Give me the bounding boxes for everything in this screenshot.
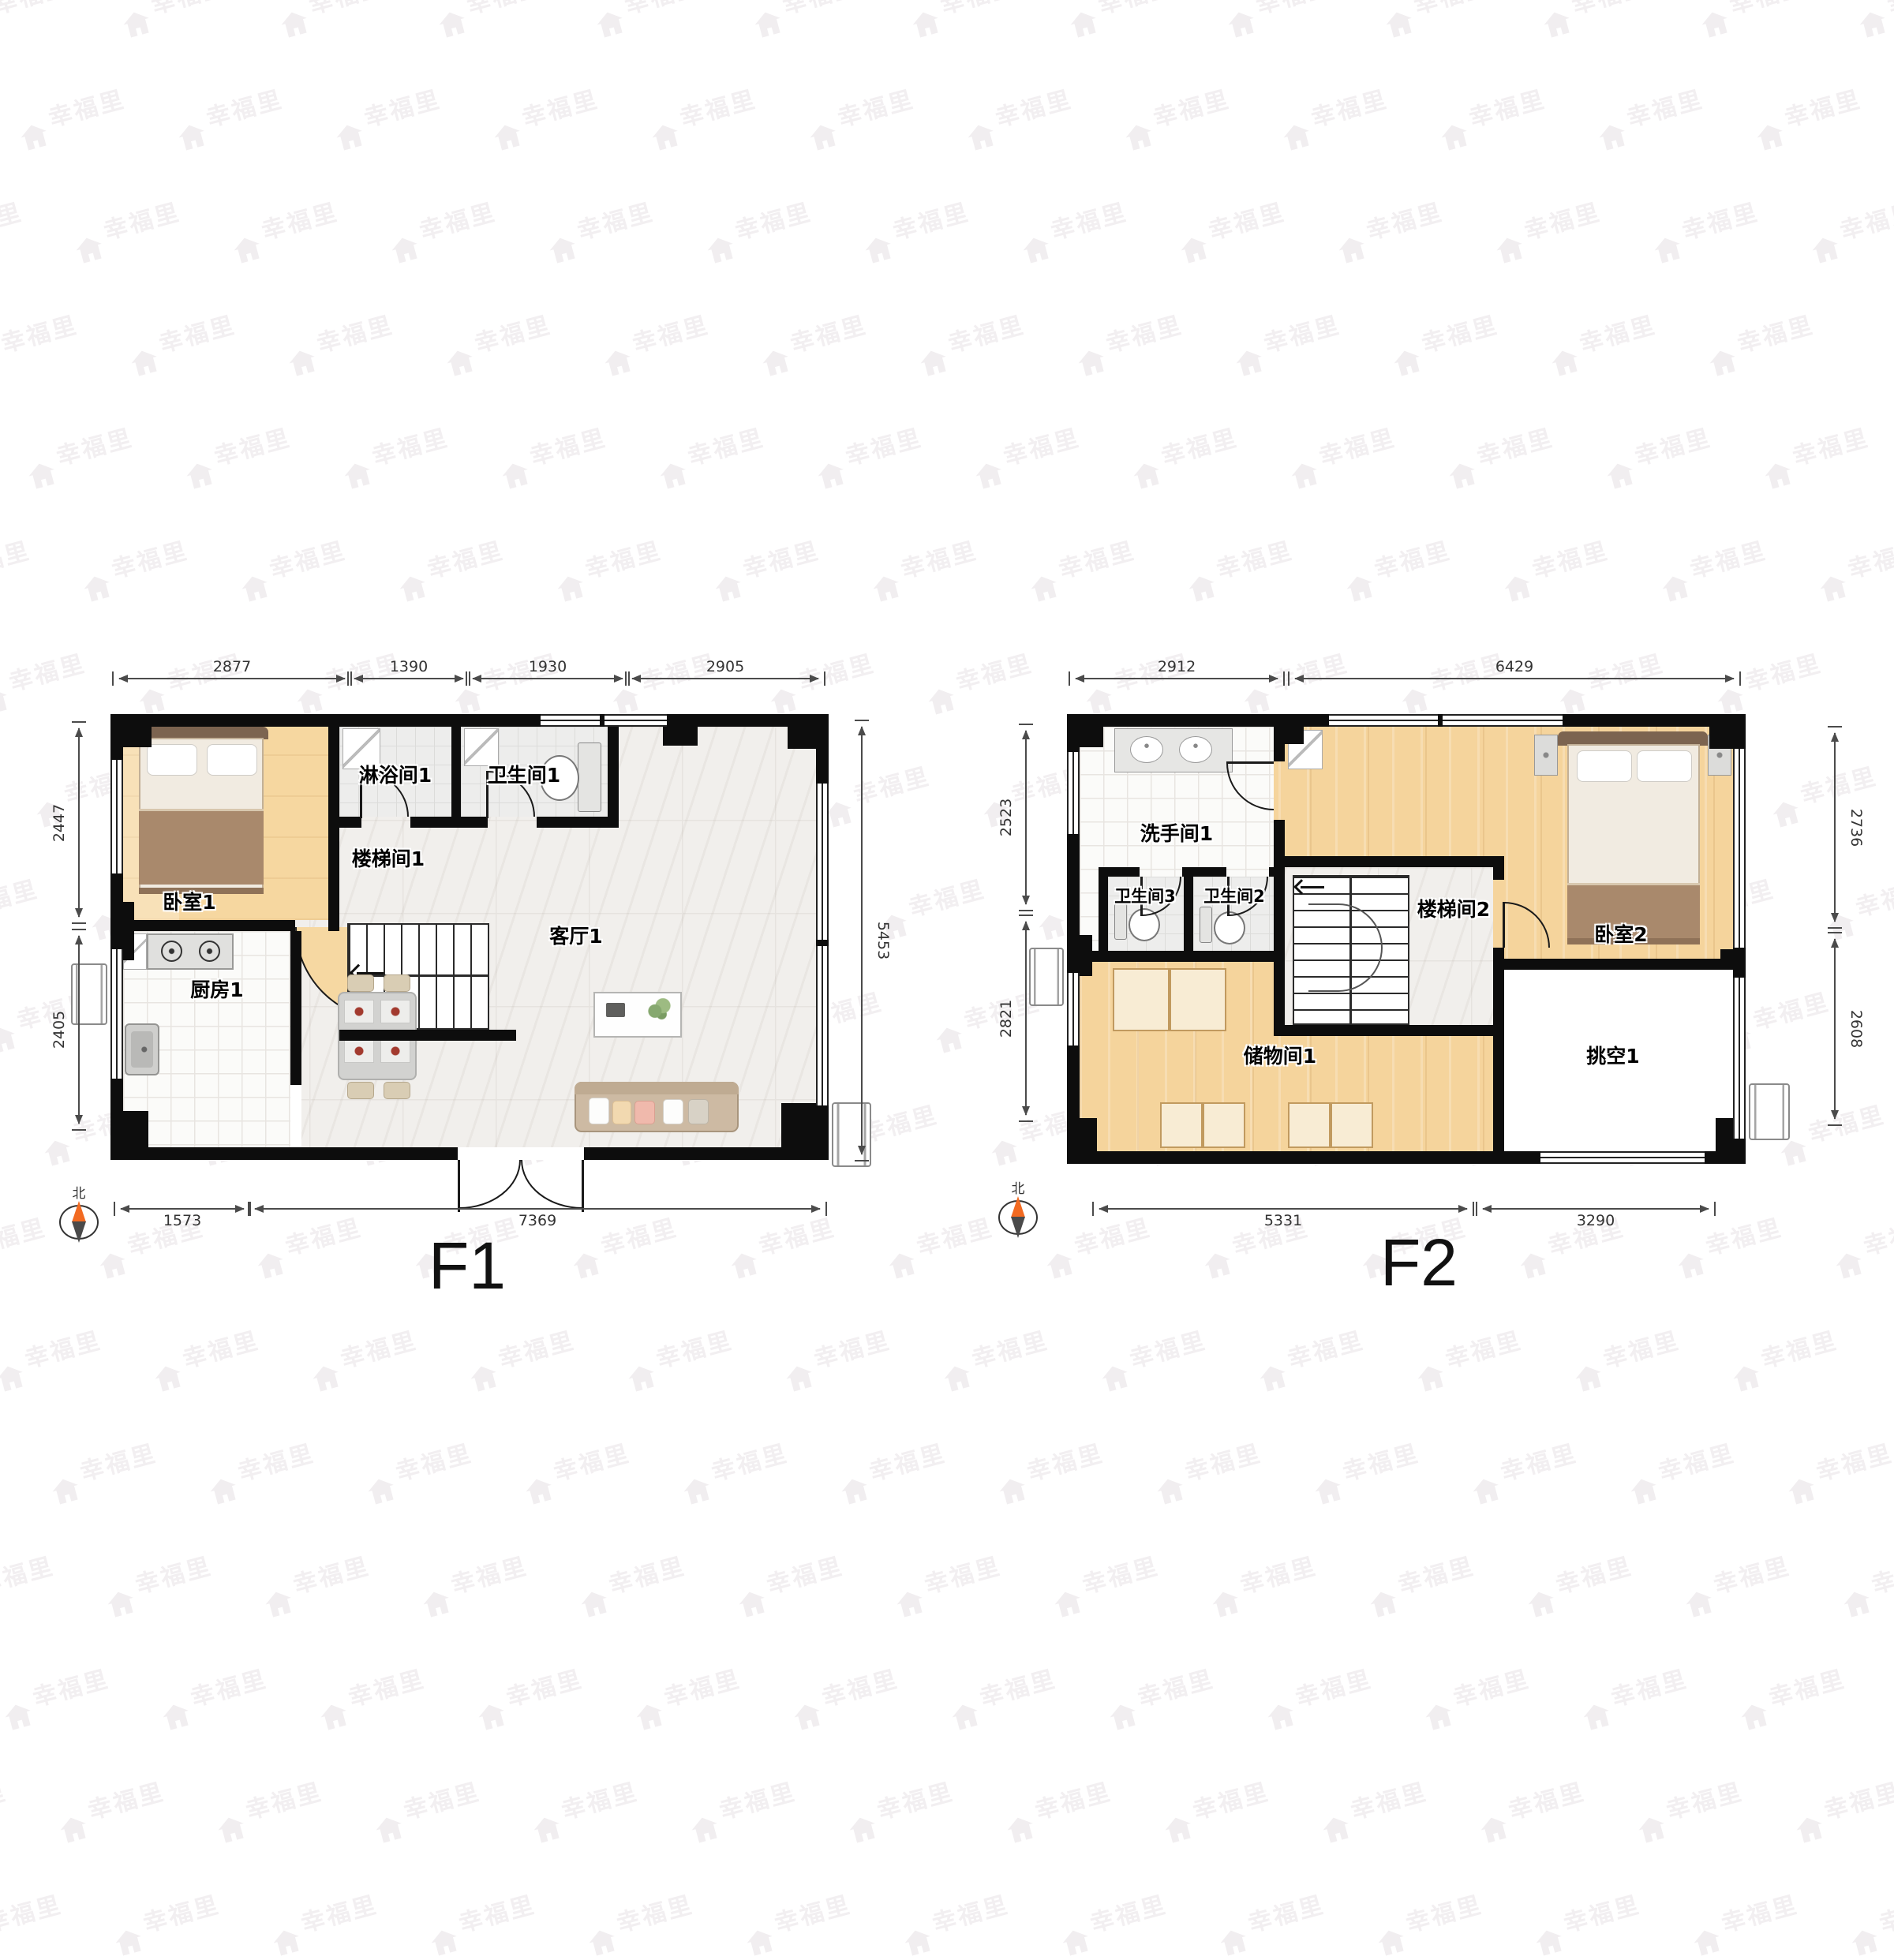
- watermark-house-icon: [271, 1927, 304, 1960]
- wall: [290, 931, 301, 1085]
- watermark-house-icon: [255, 1250, 288, 1283]
- watermark-text: 幸福里: [494, 1321, 578, 1375]
- wall: [328, 727, 339, 931]
- place-setting: [344, 1039, 374, 1063]
- dimension-value: 2405: [51, 1011, 68, 1049]
- dimension-segment: 2905: [631, 671, 819, 686]
- stair-arrow-line: [1301, 886, 1324, 888]
- watermark-house-icon: [81, 573, 114, 606]
- watermark-text: 幸福里: [968, 1321, 1052, 1375]
- watermark-house-icon: [492, 122, 525, 155]
- storage-cabinet: [1288, 1102, 1331, 1148]
- watermark-text: 幸福里: [305, 0, 389, 21]
- dimension-value: 6429: [1495, 658, 1533, 675]
- watermark-house-icon: [1131, 460, 1164, 493]
- watermark-house-icon: [926, 686, 959, 719]
- watermark-text: 幸福里: [1717, 1885, 1802, 1939]
- ac-unit: [1749, 1083, 1790, 1140]
- watermark-text: 幸福里: [1212, 531, 1297, 585]
- column: [1720, 949, 1746, 970]
- column: [1709, 714, 1746, 749]
- watermark-text: 幸福里: [1843, 531, 1894, 585]
- watermark-house-icon: [863, 234, 896, 267]
- watermark-text: 幸福里: [1654, 1434, 1739, 1487]
- watermark-text: 幸福里: [912, 1208, 997, 1262]
- dimension-value: 5453: [874, 922, 892, 959]
- watermark-text: 幸福里: [28, 1659, 113, 1713]
- place-setting: [380, 1000, 410, 1023]
- watermark-text: 幸福里: [265, 531, 350, 585]
- watermark-text: 幸福里: [1859, 1208, 1894, 1262]
- ac-unit: [1029, 948, 1064, 1006]
- watermark-text: 幸福里: [1575, 305, 1660, 359]
- watermark-house-icon: [1099, 1363, 1132, 1396]
- watermark-text: 幸福里: [896, 531, 981, 585]
- toilet-bowl: [1214, 911, 1245, 944]
- window-mullion: [600, 714, 605, 727]
- watermark-text: 幸福里: [139, 1885, 223, 1939]
- window: [1067, 752, 1080, 834]
- watermark-house-icon: [1660, 573, 1693, 606]
- watermark-text: 幸福里: [1607, 1659, 1691, 1713]
- watermark-house-icon: [1076, 347, 1109, 380]
- wall: [1493, 970, 1504, 1151]
- watermark-house-icon: [1312, 1476, 1346, 1509]
- sofa-pillow: [663, 1099, 683, 1124]
- watermark-house-icon: [839, 1476, 872, 1509]
- watermark-text: 幸福里: [1236, 1547, 1320, 1600]
- watermark-text: 幸福里: [423, 531, 507, 585]
- watermark-text: 幸福里: [1725, 0, 1810, 21]
- column: [1067, 1118, 1097, 1164]
- watermark-house-icon: [1107, 1701, 1140, 1734]
- kitchen-opening: [290, 1085, 301, 1147]
- watermark-text: 幸福里: [707, 1434, 792, 1487]
- room-label-toilet2: 卫生间2: [1203, 884, 1265, 907]
- watermark-house-icon: [815, 460, 848, 493]
- watermark-text: 幸福里: [455, 1885, 539, 1939]
- watermark-house-icon: [176, 122, 209, 155]
- watermark-text: 幸福里: [234, 1434, 318, 1487]
- watermark-text: 幸福里: [1078, 1547, 1162, 1600]
- watermark-text: 幸福里: [1567, 0, 1652, 21]
- watermark-text: 幸福里: [1086, 1885, 1170, 1939]
- column: [110, 714, 152, 747]
- watermark-house-icon: [705, 234, 738, 267]
- wall: [608, 727, 619, 828]
- dimension-value: 7369: [518, 1212, 556, 1229]
- watermark-text: 幸福里: [975, 1659, 1060, 1713]
- watermark-text: 幸福里: [683, 418, 768, 472]
- toilet-tank: [578, 742, 601, 812]
- room-label-bedroom2: 卧室2: [1594, 919, 1647, 948]
- watermark-house-icon: [476, 1701, 509, 1734]
- watermark-text: 幸福里: [1133, 1659, 1218, 1713]
- watermark-house-icon: [1005, 1814, 1038, 1847]
- room-label-living1: 客厅1: [549, 921, 602, 949]
- watermark-house-icon: [208, 1476, 241, 1509]
- watermark-text: 幸福里: [1094, 0, 1178, 21]
- watermark-house-icon: [429, 1927, 462, 1960]
- watermark-house-icon: [1525, 1588, 1559, 1621]
- watermark-text: 幸福里: [415, 193, 500, 246]
- wall: [110, 714, 829, 727]
- watermark-house-icon: [870, 573, 904, 606]
- watermark-text: 幸福里: [612, 1885, 697, 1939]
- watermark-house-icon: [97, 1250, 130, 1283]
- watermark-text: 幸福里: [1338, 1434, 1423, 1487]
- watermark-text: 幸福里: [1291, 1659, 1376, 1713]
- watermark-house-icon: [42, 1137, 75, 1170]
- watermark-house-icon: [602, 347, 635, 380]
- watermark-text: 幸福里: [1804, 1095, 1888, 1149]
- watermark-house-icon: [1060, 1927, 1093, 1960]
- compass-north-label: 北: [994, 1177, 1042, 1197]
- watermark-text: 幸福里: [1552, 1547, 1636, 1600]
- watermark-house-icon: [1257, 1363, 1290, 1396]
- watermark-text: 幸福里: [0, 1208, 50, 1262]
- watermark-house-icon: [121, 9, 154, 42]
- watermark-house-icon: [1581, 1701, 1614, 1734]
- pillow: [1637, 750, 1692, 782]
- dimension-segment: 1573: [120, 1202, 245, 1216]
- watermark-text: 幸福里: [1701, 1208, 1786, 1262]
- watermark-text: 幸福里: [0, 193, 26, 246]
- watermark-house-icon: [1549, 347, 1582, 380]
- watermark-house-icon: [1178, 234, 1211, 267]
- dimension-value: 3290: [1577, 1212, 1615, 1229]
- watermark-text: 幸福里: [1054, 531, 1139, 585]
- watermark-text: 幸福里: [1449, 1659, 1533, 1713]
- wall: [1493, 856, 1504, 880]
- watermark-house-icon: [973, 460, 1006, 493]
- watermark-house-icon: [1415, 1363, 1448, 1396]
- wall: [410, 817, 488, 828]
- watermark-house-icon: [1186, 573, 1219, 606]
- watermark-house-icon: [1691, 1927, 1724, 1960]
- watermark-house-icon: [468, 1363, 501, 1396]
- watermark-house-icon: [58, 1814, 91, 1847]
- watermark-text: 幸福里: [0, 0, 73, 21]
- compass-f2: 北: [994, 1177, 1042, 1235]
- wall: [1274, 951, 1285, 1036]
- wall: [1182, 867, 1226, 877]
- watermark-house-icon: [1683, 1588, 1716, 1621]
- watermark-text: 幸福里: [889, 193, 973, 246]
- watermark-text: 幸福里: [1149, 80, 1233, 133]
- watermark-text: 幸福里: [1362, 193, 1447, 246]
- watermark-text: 幸福里: [833, 80, 918, 133]
- watermark-house-icon: [18, 122, 51, 155]
- watermark-text: 幸福里: [549, 1434, 634, 1487]
- watermark-text: 幸福里: [1599, 1321, 1683, 1375]
- column: [110, 1111, 148, 1160]
- dimension-value: 2877: [213, 658, 251, 675]
- watermark-house-icon: [2, 1701, 36, 1734]
- watermark-text: 幸福里: [76, 1434, 160, 1487]
- wall: [1274, 856, 1504, 867]
- storage-cabinet: [1160, 1102, 1203, 1148]
- chair: [384, 1082, 410, 1099]
- watermark-text: 幸福里: [1686, 531, 1770, 585]
- watermark-house-icon: [215, 1814, 249, 1847]
- watermark-house-icon: [1028, 573, 1061, 606]
- watermark-house-icon: [1123, 122, 1156, 155]
- watermark-house-icon: [578, 1588, 612, 1621]
- sofa-back: [575, 1082, 739, 1094]
- watermark-house-icon: [807, 122, 840, 155]
- watermark-text: 幸福里: [928, 1885, 1013, 1939]
- watermark-house-icon: [1857, 9, 1890, 42]
- watermark-house-icon: [1447, 460, 1480, 493]
- watermark-text: 幸福里: [620, 0, 705, 21]
- watermark-text: 幸福里: [297, 1885, 381, 1939]
- dimension-value: 2447: [51, 803, 68, 841]
- sink-basin: [131, 1031, 153, 1068]
- watermark-house-icon: [1155, 1476, 1188, 1509]
- chair: [347, 1082, 374, 1099]
- watermark-house-icon: [784, 1363, 817, 1396]
- dimension-segment: 2447: [72, 728, 86, 918]
- watermark-house-icon: [626, 1363, 659, 1396]
- room-label-void1: 挑空1: [1586, 1041, 1639, 1069]
- watermark-text: 幸福里: [1315, 418, 1399, 472]
- watermark-text: 幸福里: [1125, 1321, 1210, 1375]
- watermark-text: 幸福里: [0, 1772, 10, 1826]
- watermark-text: 幸福里: [155, 305, 239, 359]
- watermark-text: 幸福里: [289, 1547, 373, 1600]
- watermark-text: 幸福里: [573, 193, 657, 246]
- watermark-house-icon: [555, 573, 588, 606]
- watermark-house-icon: [649, 122, 683, 155]
- watermark-house-icon: [1233, 347, 1267, 380]
- dimension-segment: 2523: [1019, 730, 1033, 905]
- watermark-house-icon: [1762, 460, 1795, 493]
- watermark-house-icon: [421, 1588, 454, 1621]
- watermark-text: 幸福里: [281, 1208, 365, 1262]
- watermark-house-icon: [1849, 1927, 1882, 1960]
- watermark-house-icon: [444, 347, 477, 380]
- watermark-text: 幸福里: [1417, 305, 1502, 359]
- watermark-text: 幸福里: [731, 193, 815, 246]
- watermark-house-icon: [1604, 460, 1638, 493]
- watermark-house-icon: [1202, 1250, 1235, 1283]
- watermark-house-icon: [1052, 1588, 1085, 1621]
- dimension-segment: 2608: [1828, 938, 1842, 1120]
- wall: [110, 920, 295, 931]
- watermark-text: 幸福里: [147, 0, 231, 21]
- dimension-value: 2736: [1847, 808, 1865, 846]
- watermark-text: 幸福里: [1204, 193, 1289, 246]
- watermark-text: 幸福里: [107, 531, 192, 585]
- watermark-text: 幸福里: [470, 305, 555, 359]
- column: [1067, 714, 1103, 747]
- wall: [1274, 1025, 1504, 1036]
- dimension-segment: 2405: [72, 935, 86, 1124]
- watermark-house-icon: [728, 1250, 762, 1283]
- watermark-text: 幸福里: [865, 1434, 949, 1487]
- watermark-house-icon: [1210, 1588, 1243, 1621]
- watermark-house-icon: [286, 347, 320, 380]
- watermark-house-icon: [1439, 122, 1472, 155]
- compass-icon: [998, 1200, 1038, 1235]
- watermark-house-icon: [1573, 1363, 1606, 1396]
- watermark-text: 幸福里: [778, 0, 863, 21]
- watermark-house-icon: [1652, 234, 1685, 267]
- wall: [1184, 877, 1193, 951]
- pillow: [147, 744, 197, 776]
- watermark-text: 幸福里: [841, 418, 926, 472]
- watermark-text: 幸福里: [715, 1772, 799, 1826]
- compass-north-label: 北: [55, 1182, 103, 1202]
- nightstand: [1534, 735, 1558, 776]
- watermark-text: 幸福里: [99, 193, 184, 246]
- watermark-text: 幸福里: [462, 0, 547, 21]
- watermark-text: 幸福里: [1662, 1772, 1746, 1826]
- watermark-house-icon: [365, 1476, 399, 1509]
- watermark-house-icon: [1770, 799, 1803, 832]
- watermark-text: 幸福里: [1267, 644, 1352, 698]
- watermark-house-icon: [500, 460, 533, 493]
- watermark-house-icon: [594, 9, 627, 42]
- floor-title-f1: F1: [380, 1228, 554, 1304]
- sofa-pillow: [688, 1099, 709, 1124]
- compass-needle-north: [1011, 1196, 1025, 1218]
- compass-icon: [59, 1205, 99, 1240]
- watermark-text: 幸福里: [597, 1208, 681, 1262]
- watermark-text: 幸福里: [999, 418, 1084, 472]
- watermark-house-icon: [531, 1814, 564, 1847]
- compass-f1: 北: [55, 1182, 103, 1240]
- storage-cabinet: [1113, 968, 1170, 1031]
- dimension-value: 2821: [998, 999, 1015, 1037]
- room-label-washroom1: 洗手间1: [1140, 818, 1213, 847]
- watermark-house-icon: [1786, 1476, 1819, 1509]
- room-label-bedroom1: 卧室1: [163, 887, 215, 915]
- dimension-segment: 1930: [472, 671, 623, 686]
- watermark-house-icon: [681, 1476, 714, 1509]
- watermark-text: 幸福里: [920, 1547, 1005, 1600]
- watermark-text: 幸福里: [1836, 193, 1894, 246]
- watermark-text: 幸福里: [1031, 1772, 1115, 1826]
- watermark-text: 幸福里: [1528, 531, 1612, 585]
- watermark-house-icon: [73, 234, 107, 267]
- wall: [339, 817, 361, 828]
- window: [1067, 973, 1080, 1045]
- watermark-house-icon: [1320, 1814, 1353, 1847]
- watermark-house-icon: [910, 9, 943, 42]
- wash-basin: [1130, 736, 1163, 763]
- watermark-text: 幸福里: [84, 1772, 168, 1826]
- watermark-house-icon: [989, 1137, 1022, 1170]
- watermark-text: 幸福里: [0, 870, 42, 923]
- watermark-house-icon: [1596, 122, 1630, 155]
- dimension-segment: 2877: [118, 671, 346, 686]
- watermark-text: 幸福里: [1765, 1659, 1849, 1713]
- watermark-house-icon: [318, 1701, 351, 1734]
- watermark-text: 幸福里: [1188, 1772, 1273, 1826]
- watermark-house-icon: [0, 1024, 20, 1057]
- watermark-house-icon: [105, 1588, 138, 1621]
- sofa-pillow: [612, 1101, 631, 1124]
- watermark-house-icon: [571, 1250, 604, 1283]
- dimension-segment: 2912: [1075, 671, 1278, 686]
- watermark-house-icon: [744, 1927, 777, 1960]
- watermark-house-icon: [1754, 122, 1787, 155]
- toilet-tank: [1114, 903, 1127, 940]
- watermark-house-icon: [736, 1588, 769, 1621]
- dimension-value: 2523: [998, 799, 1015, 836]
- column: [788, 714, 829, 749]
- watermark-text: 幸福里: [739, 531, 823, 585]
- dimension-value: 2912: [1158, 658, 1196, 675]
- dimension-segment: 1390: [354, 671, 464, 686]
- watermark-text: 幸福里: [1820, 1772, 1894, 1826]
- wall: [451, 727, 461, 817]
- watermark-text: 幸福里: [1520, 193, 1604, 246]
- watermark-text: 幸福里: [1630, 418, 1715, 472]
- watermark-text: 幸福里: [391, 1434, 476, 1487]
- watermark-text: 幸福里: [210, 418, 294, 472]
- watermark-text: 幸福里: [1757, 1321, 1841, 1375]
- dimension-segment: 5453: [855, 726, 869, 1155]
- room-label-stair2: 楼梯间2: [1417, 894, 1490, 922]
- watermark-house-icon: [523, 1476, 556, 1509]
- wall: [1099, 867, 1140, 877]
- watermark-text: 幸福里: [660, 1659, 744, 1713]
- watermark-house-icon: [713, 573, 746, 606]
- watermark-text: 幸福里: [1583, 644, 1668, 698]
- window-mullion: [1438, 714, 1443, 727]
- watermark-house-icon: [1470, 1476, 1503, 1509]
- watermark-house-icon: [113, 1927, 146, 1960]
- watermark-house-icon: [263, 1588, 296, 1621]
- watermark-house-icon: [1265, 1701, 1298, 1734]
- watermark-house-icon: [918, 347, 951, 380]
- watermark-house-icon: [1281, 122, 1314, 155]
- floor-plan-f1: 卧室1 厨房1 淋浴间1 卫生间1 楼梯间1 客厅1: [110, 714, 829, 1160]
- window: [1733, 978, 1746, 1139]
- watermark-text: 幸福里: [52, 418, 137, 472]
- watermark-house-icon: [1383, 9, 1417, 42]
- bed-blanket: [139, 809, 264, 885]
- watermark-house-icon: [1636, 1814, 1669, 1847]
- watermark-text: 幸福里: [1244, 1885, 1328, 1939]
- room-label-shower1: 淋浴间1: [359, 760, 432, 788]
- watermark-house-icon: [1502, 573, 1535, 606]
- watermark-text: 幸福里: [0, 531, 34, 585]
- watermark-house-icon: [886, 1250, 919, 1283]
- watermark-text: 幸福里: [991, 80, 1076, 133]
- watermark-house-icon: [1533, 1927, 1566, 1960]
- dimension-segment: 6429: [1294, 671, 1735, 686]
- watermark-text: 幸福里: [1260, 305, 1344, 359]
- watermark-text: 幸福里: [1409, 0, 1494, 21]
- compass-needle-south: [72, 1221, 86, 1243]
- watermark-house-icon: [160, 1701, 193, 1734]
- watermark-text: 幸福里: [21, 1321, 105, 1375]
- tray: [606, 1003, 625, 1017]
- watermark-text: 幸福里: [336, 1321, 421, 1375]
- sofa-pillow: [589, 1098, 609, 1124]
- dimension-value: 2608: [1847, 1010, 1865, 1048]
- watermark-house-icon: [50, 1476, 83, 1509]
- watermark-text: 幸福里: [1283, 1321, 1368, 1375]
- toilet-tank: [1200, 907, 1212, 943]
- watermark-text: 幸福里: [178, 1321, 263, 1375]
- watermark-house-icon: [1478, 1814, 1511, 1847]
- watermark-text: 幸福里: [652, 1321, 736, 1375]
